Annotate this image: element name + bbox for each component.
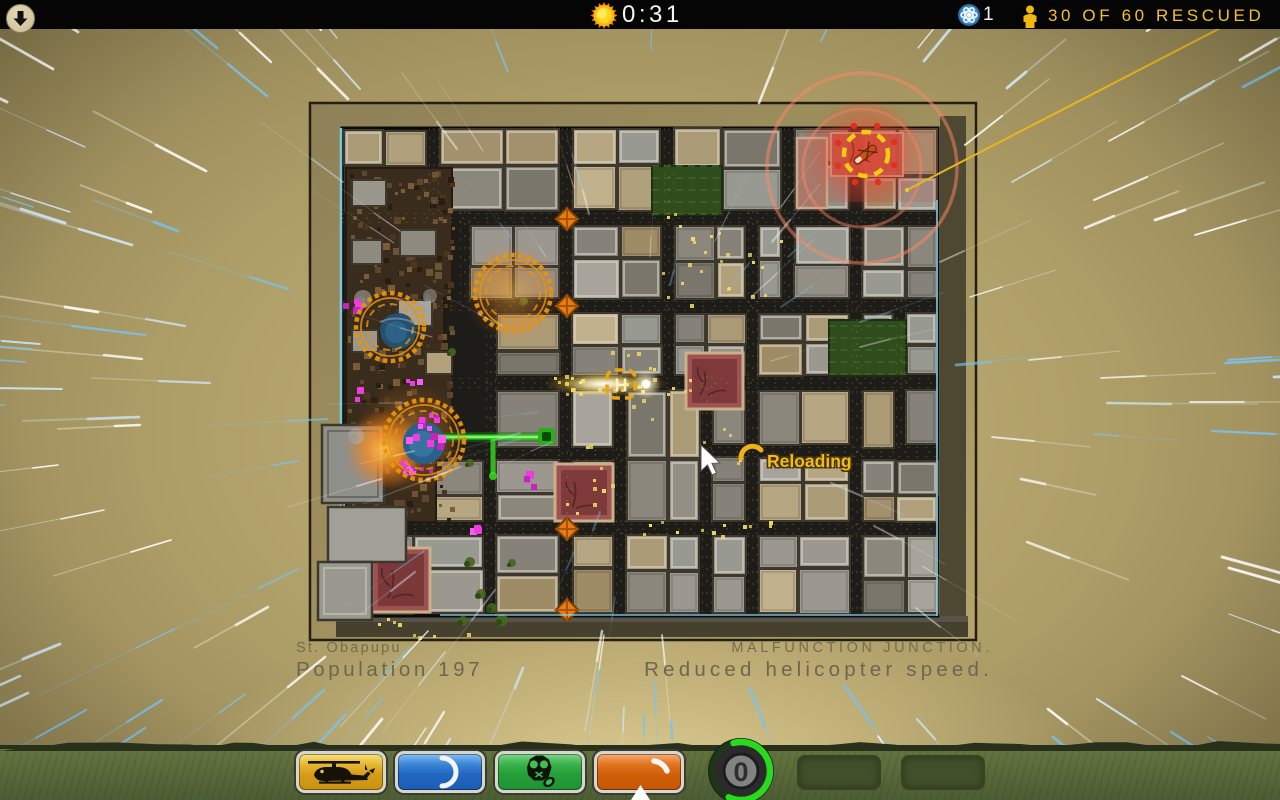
svg-text:0: 0 [733,757,748,787]
svg-text:H: H [615,376,628,396]
